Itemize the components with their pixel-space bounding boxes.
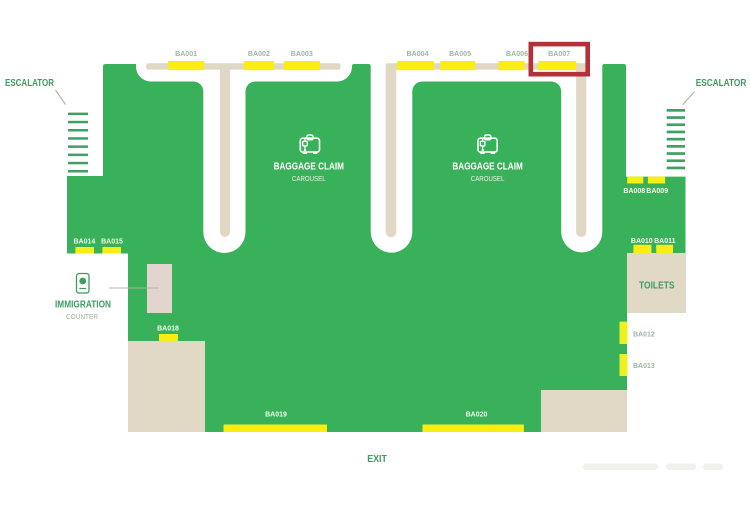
svg-text:BA014: BA014 (74, 239, 96, 246)
svg-text:ESCALATOR: ESCALATOR (5, 78, 55, 89)
svg-text:BA011: BA011 (654, 238, 676, 245)
svg-text:BA009: BA009 (646, 188, 668, 195)
svg-text:BA010: BA010 (631, 238, 653, 245)
svg-text:BA007: BA007 (548, 51, 570, 58)
svg-text:BA008: BA008 (623, 188, 645, 195)
svg-text:CAROUSEL: CAROUSEL (471, 174, 505, 183)
svg-text:BAGGAGE CLAIM: BAGGAGE CLAIM (452, 162, 522, 173)
svg-text:BA004: BA004 (407, 51, 429, 58)
svg-text:BA012: BA012 (633, 332, 655, 339)
svg-text:ESCALATOR: ESCALATOR (696, 78, 747, 89)
svg-text:BA019: BA019 (265, 412, 287, 419)
svg-text:BA015: BA015 (101, 239, 123, 246)
svg-text:CAROUSEL: CAROUSEL (292, 174, 326, 183)
svg-text:BA006: BA006 (506, 51, 528, 58)
svg-text:COUNTER: COUNTER (66, 312, 98, 321)
svg-text:TOILETS: TOILETS (639, 280, 675, 291)
svg-text:EXIT: EXIT (367, 454, 387, 465)
svg-text:BA013: BA013 (633, 363, 655, 370)
svg-text:IMMIGRATION: IMMIGRATION (55, 300, 111, 311)
svg-text:BA018: BA018 (157, 326, 179, 333)
svg-text:BA005: BA005 (449, 51, 471, 58)
svg-text:BA002: BA002 (248, 51, 270, 58)
svg-text:BA020: BA020 (466, 412, 488, 419)
svg-text:BAGGAGE CLAIM: BAGGAGE CLAIM (274, 162, 344, 173)
svg-text:BA001: BA001 (175, 51, 197, 58)
svg-text:BA003: BA003 (291, 51, 313, 58)
